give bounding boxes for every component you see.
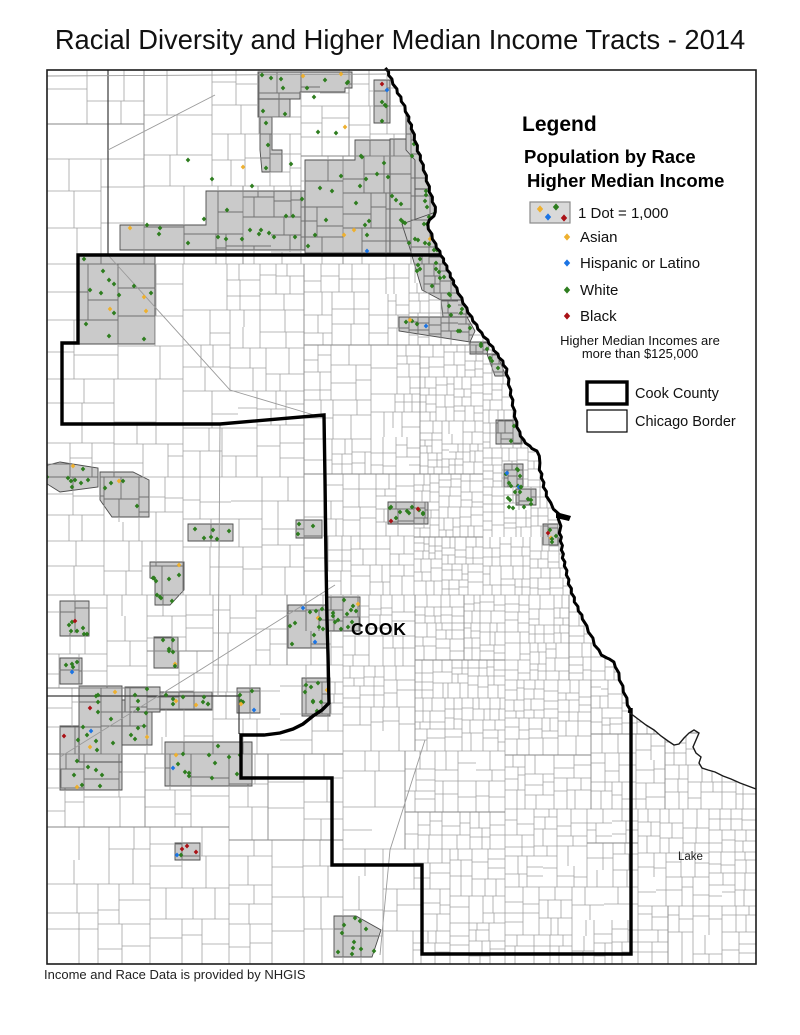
svg-text:Higher Median Income: Higher Median Income (527, 170, 724, 191)
svg-text:Hispanic or Latino: Hispanic or Latino (580, 255, 700, 272)
svg-text:Population by Race: Population by Race (524, 146, 696, 167)
svg-text:Asian: Asian (580, 229, 618, 246)
svg-text:Chicago Border: Chicago Border (635, 414, 736, 430)
svg-text:Lake: Lake (678, 851, 703, 863)
svg-text:COOK: COOK (351, 619, 407, 639)
svg-text:Legend: Legend (522, 113, 597, 136)
svg-text:Racial Diversity and Higher Me: Racial Diversity and Higher Median Incom… (55, 24, 745, 55)
svg-text:White: White (580, 282, 618, 299)
svg-text:1 Dot = 1,000: 1 Dot = 1,000 (578, 205, 668, 222)
svg-text:Income and Race Data is provid: Income and Race Data is provided by NHGI… (44, 967, 306, 982)
svg-text:more than $125,000: more than $125,000 (582, 346, 698, 361)
svg-text:Black: Black (580, 308, 617, 325)
svg-text:Cook County: Cook County (635, 386, 720, 402)
